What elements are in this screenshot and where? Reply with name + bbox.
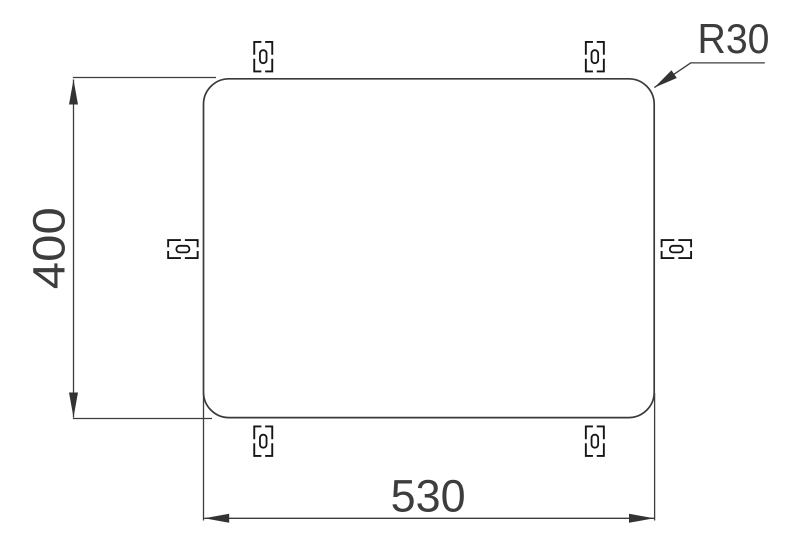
svg-text:530: 530 (391, 470, 466, 521)
svg-text:R30: R30 (698, 15, 770, 62)
svg-text:400: 400 (24, 207, 75, 289)
